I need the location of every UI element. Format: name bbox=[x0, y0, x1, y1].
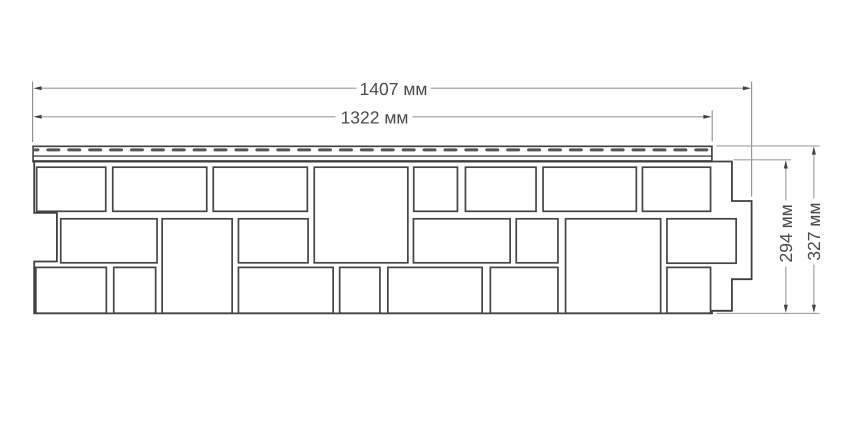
svg-text:1407 мм: 1407 мм bbox=[360, 79, 428, 99]
svg-text:294 мм: 294 мм bbox=[776, 204, 796, 262]
svg-text:327 мм: 327 мм bbox=[804, 203, 824, 261]
svg-text:1322 мм: 1322 мм bbox=[341, 108, 409, 128]
